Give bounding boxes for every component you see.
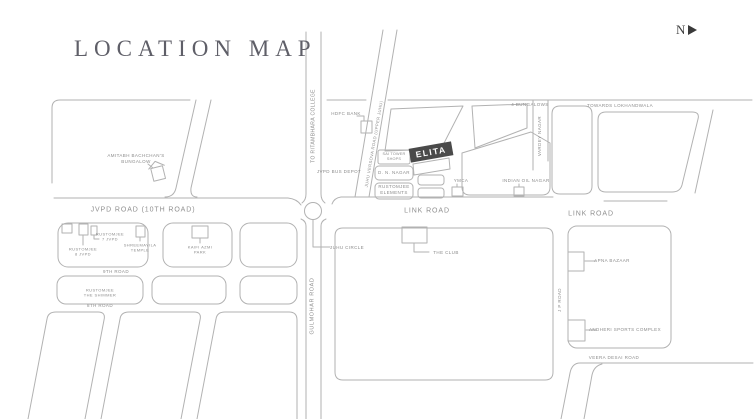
label-dn-nagar: D. N. NAGAR: [378, 170, 410, 176]
andheri-sports-building-icon: [568, 320, 585, 341]
road-lines-west: [52, 100, 301, 205]
label-juhu-circle: JUHU CIRCLE: [330, 245, 364, 251]
building-icon: [62, 224, 72, 233]
kaifi-azmi-park-icon: [192, 226, 208, 238]
label-vardey-nagar: VARDEY NAGAR: [537, 116, 543, 156]
label-jvpd-road: JVPD ROAD (10TH ROAD): [91, 205, 196, 214]
juhu-circle-roundabout: [305, 203, 322, 220]
the-club-leader-line: [414, 243, 429, 252]
label-hdfc-bank: HDFC BANK: [331, 111, 361, 117]
label-temple: SHREEMAYILA TEMPLE: [124, 243, 157, 254]
label-amitabh-bachchans-bungalow: AMITABH BACHCHAN'S BUNGALOW: [107, 153, 164, 165]
rustomjee-8-building-icon: [79, 224, 88, 235]
label-indian-oil-nagar: INDIAN OIL NAGAR: [502, 178, 549, 184]
page-title: LOCATION MAP: [74, 36, 317, 62]
label-gulmohar-road: GULMOHAR ROAD: [309, 278, 316, 335]
location-map: LOCATION MAP N TO RITAMBHARA COLLEGE JUH…: [0, 0, 755, 419]
apna-bazaar-building-icon: [568, 252, 584, 271]
label-apna-bazaar: APNA BAZAAR: [594, 258, 630, 264]
label-sai-tower-shops: SAI TOWER SHOPS: [383, 152, 406, 162]
road-lines-central: [301, 32, 553, 419]
the-club-building-icon: [402, 227, 427, 243]
label-rustomjee-elements: RUSTOMJEE ELEMENTS: [378, 184, 409, 196]
city-block-upper-right: [598, 112, 698, 192]
label-kaifi-azmi-park: KAIFI AZMI PARK: [188, 245, 212, 256]
label-four-bungalows: 4 BUNGALOWS: [511, 102, 548, 108]
label-link-road-centre: LINK ROAD: [404, 206, 450, 215]
label-9th-road: 9TH ROAD: [103, 269, 129, 275]
label-link-road-east: LINK ROAD: [568, 209, 614, 218]
label-towards-lokhandwala: TOWARDS LOKHANDWALA: [587, 103, 653, 109]
label-rustomjee-8-jvpd: RUSTOMJEE 8 JVPD: [69, 247, 97, 258]
label-8th-road: 8TH ROAD: [87, 303, 113, 309]
label-to-ritambhara-college: TO RITAMBHARA COLLEGE: [311, 89, 318, 163]
label-andheri-sports-complex: ANDHERI SPORTS COMPLEX: [589, 327, 661, 333]
compass: N: [676, 22, 697, 38]
road-lines-south-east: [561, 363, 753, 419]
label-veera-desai-road: VEERA DESAI ROAD: [589, 355, 639, 361]
ymca-building-icon: [452, 187, 463, 196]
label-rustomjee-the-shimmer: RUSTOMJEE THE SHIMMER: [84, 288, 116, 299]
label-ymca: YMCA: [454, 178, 469, 184]
label-jp-road: J P ROAD: [557, 288, 563, 312]
label-the-club: THE CLUB: [433, 250, 458, 256]
compass-north-label: N: [676, 22, 685, 38]
label-jvpd-bus-depot: JVPD BUS DEPOT: [317, 169, 361, 175]
compass-arrow-icon: [688, 25, 697, 35]
label-rustomjee-7-jvpd: RUSTOMJEE 7 JVPD: [96, 232, 124, 243]
temple-building-icon: [136, 226, 145, 237]
